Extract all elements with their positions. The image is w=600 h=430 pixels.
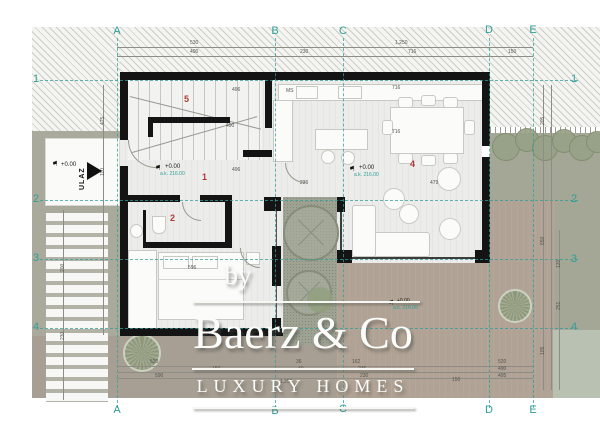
dim-line (117, 372, 533, 373)
dining-chair (443, 97, 458, 108)
kitchen-counter-label: MS (286, 89, 294, 94)
entrance-label: ULAZ (79, 167, 86, 190)
kitchen-sink (296, 86, 318, 99)
watermark-rule (192, 301, 420, 303)
dim-label: 590 (155, 374, 163, 379)
stair-wall (150, 117, 230, 123)
grid-label-col: A (111, 25, 123, 37)
watermark-tagline: LUXURY HOMES (172, 376, 434, 397)
dim-label: 236 (300, 181, 308, 186)
toilet (152, 216, 166, 234)
room-number-living: 4 (410, 159, 415, 169)
level-living-abs: a.k. 216.00 (354, 173, 379, 178)
dim-line (551, 85, 552, 390)
dim-label: 490 (226, 124, 234, 129)
dim-label: 716 (408, 50, 416, 55)
bar-stool (321, 150, 335, 164)
patio-post (272, 246, 281, 286)
grid-line-E (533, 38, 534, 408)
grid-label-col: D (483, 404, 495, 416)
kitchen-island (315, 129, 368, 150)
grid-line-D (489, 38, 490, 408)
dim-label: 150 (508, 50, 516, 55)
grid-label-col: A (111, 404, 123, 416)
dining-chair (421, 155, 436, 166)
grid-label-row: 2 (30, 193, 42, 205)
hatched-ground-right (490, 27, 600, 127)
level-flag-icon: ⚑ (52, 161, 58, 168)
dim-line (117, 56, 533, 57)
watermark-rule (192, 407, 414, 409)
bath-wall-south (143, 242, 232, 248)
stair-wall-stub (148, 117, 153, 137)
dim-label: 520 (498, 360, 506, 365)
dim-label: 36 (296, 360, 302, 365)
dim-label: 530 (150, 360, 158, 365)
exterior-stairs (46, 213, 108, 402)
watermark-rule (192, 368, 414, 370)
dim-label: 251 (557, 302, 562, 310)
grid-label-col: D (483, 24, 495, 36)
sofa-chaise (352, 205, 376, 257)
room-number-stairs: 5 (184, 94, 189, 104)
dining-chair (421, 95, 436, 106)
dim-label: 475 (101, 117, 106, 125)
dim-label: 230 (61, 332, 66, 340)
grid-label-row: 1 (30, 73, 42, 85)
level-entry: +0.00 (61, 162, 76, 168)
dim-label: 479 (430, 181, 438, 186)
grid-line-2 (40, 200, 578, 201)
dim-line (117, 47, 533, 48)
dim-label: 596 (188, 266, 196, 271)
grid-label-col: C (337, 403, 349, 415)
dim-label: 205 (541, 117, 546, 125)
kitchen-wall (265, 80, 272, 128)
grid-label-row: 1 (568, 73, 580, 85)
pillow (163, 256, 189, 269)
bath-partition (143, 210, 146, 242)
bath-wall-east (225, 195, 232, 248)
dim-label: 490 (190, 50, 198, 55)
grid-label-col: E (527, 24, 539, 36)
washbasin (130, 224, 143, 238)
dim-label: 120 (557, 260, 562, 268)
grid-label-row: 3 (568, 253, 580, 265)
dining-chair (398, 97, 413, 108)
corner-post-sw (337, 250, 352, 263)
grid-label-row: 3 (30, 252, 42, 264)
dim-label: 200 (61, 264, 66, 272)
level-living: +0.00 (359, 165, 374, 171)
tree-icon (498, 289, 532, 323)
dining-chair (464, 120, 475, 135)
room-number-hall: 1 (202, 172, 207, 182)
dim-label: 496 (232, 88, 240, 93)
dim-line (559, 230, 560, 390)
dim-label: 490 (498, 367, 506, 372)
grid-label-row: 4 (30, 321, 42, 333)
dim-label: 105 (541, 347, 546, 355)
dim-label: 230 (300, 50, 308, 55)
dining-chair (443, 153, 458, 164)
cooktop (338, 86, 362, 99)
ground-right-strip (553, 330, 600, 398)
dim-label: 495 (498, 374, 506, 379)
wall-west-lower (120, 166, 128, 336)
dim-label: 1,250 (395, 41, 408, 46)
dim-label: 162 (352, 360, 360, 365)
armchair (439, 218, 461, 240)
grid-line-A (117, 38, 118, 408)
dim-label: 716 (392, 130, 400, 135)
watermark-brand: Baerz & Co (178, 306, 428, 359)
grid-line-1 (40, 80, 578, 81)
wall-north (120, 72, 490, 80)
dim-label: 530 (190, 41, 198, 46)
watermark-by: by (210, 260, 266, 291)
grid-label-col: B (269, 25, 281, 37)
kitchen-cabinets (273, 100, 293, 162)
glazing-living-west (340, 212, 342, 250)
corner-post-se (475, 250, 490, 263)
level-hall: +0.00 (165, 164, 180, 170)
hall-wall (243, 150, 272, 157)
pouf (399, 204, 419, 224)
entrance-arrow-icon (87, 162, 102, 180)
grid-line-3 (40, 259, 578, 260)
dim-line (63, 210, 64, 400)
wall-west-upper (120, 72, 128, 140)
skylight-circle (283, 205, 339, 261)
dining-table (390, 107, 464, 154)
grid-label-col: E (527, 404, 539, 416)
grid-label-row: 2 (568, 193, 580, 205)
dim-label: 650 (541, 237, 546, 245)
floor-plan: A B C D E A B C D E 1 2 3 4 1 2 3 4 530 … (0, 0, 600, 430)
dim-line (117, 366, 533, 367)
grid-label-col: C (337, 25, 349, 37)
hatched-ground-left (32, 27, 120, 131)
wardrobe (128, 250, 157, 334)
grid-label-row: 4 (568, 321, 580, 333)
armchair (437, 167, 461, 191)
level-hall-abs: a.k. 216.00 (160, 172, 185, 177)
dim-label: 716 (392, 86, 400, 91)
dim-label: 496 (232, 168, 240, 173)
dim-label: 150 (452, 378, 460, 383)
room-number-bath: 2 (170, 213, 175, 223)
